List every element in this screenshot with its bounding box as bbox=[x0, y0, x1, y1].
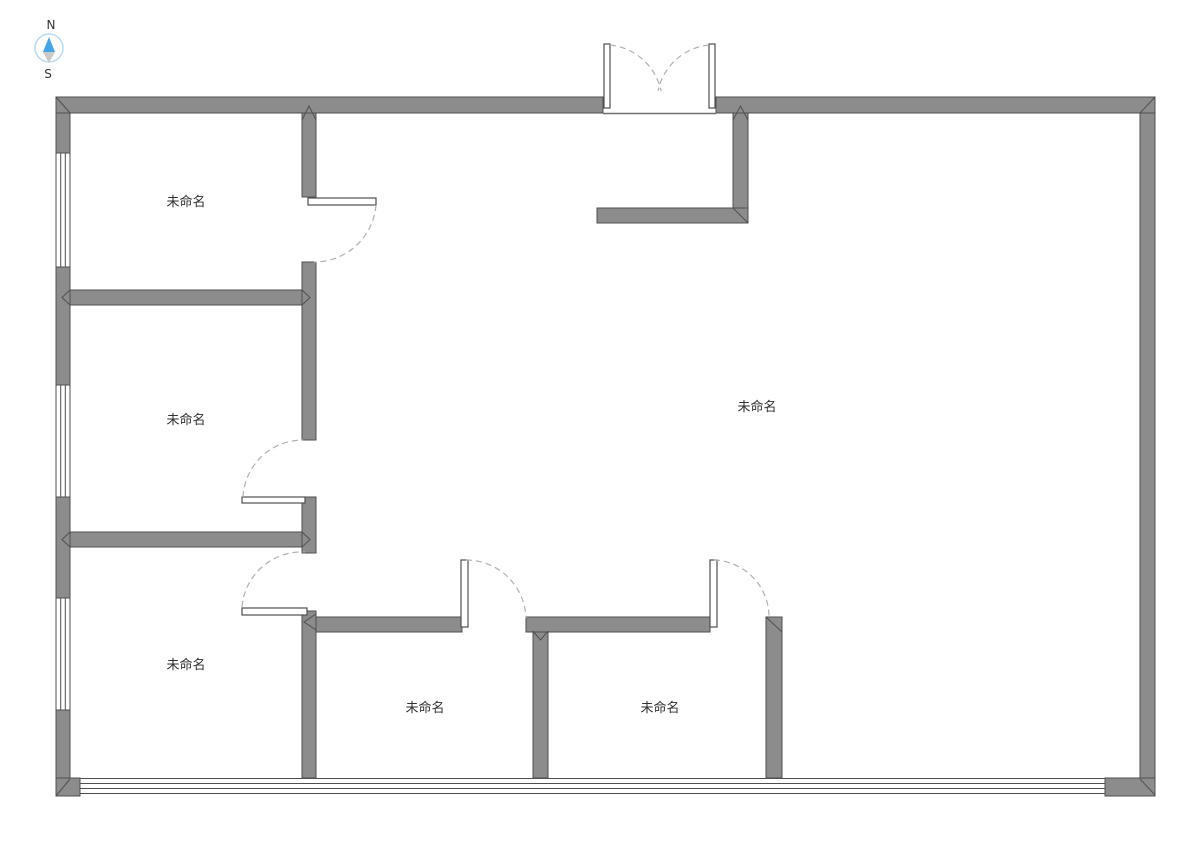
wall-bottom-rooms-top-a[interactable] bbox=[316, 617, 462, 632]
wall-top-left-segment[interactable] bbox=[56, 97, 603, 113]
wall-entry-vertical[interactable] bbox=[733, 113, 748, 223]
door-top-left-room[interactable] bbox=[308, 198, 376, 262]
room-label[interactable]: 未命名 bbox=[405, 700, 444, 716]
wall-mid-vertical-2[interactable] bbox=[302, 262, 316, 440]
double-entry-door[interactable] bbox=[603, 44, 716, 114]
compass-north-needle-icon bbox=[43, 37, 55, 52]
wall-room-divider-2[interactable] bbox=[70, 532, 302, 547]
entry-door-left-panel[interactable] bbox=[604, 44, 610, 108]
wall-top-right-segment[interactable] bbox=[716, 97, 1155, 113]
exterior-walls bbox=[56, 97, 1155, 796]
wall-joints bbox=[56, 97, 1155, 796]
compass-north-label: N bbox=[47, 18, 56, 32]
wall-mid-vertical-1[interactable] bbox=[302, 113, 316, 197]
doors bbox=[242, 44, 769, 627]
wall-mid-vertical-4[interactable] bbox=[302, 611, 316, 778]
wall-entry-horizontal[interactable] bbox=[597, 208, 748, 223]
window-left-1[interactable] bbox=[56, 153, 70, 267]
room-label[interactable]: 未命名 bbox=[737, 399, 776, 415]
floorplan-canvas[interactable]: N S bbox=[0, 0, 1190, 842]
wall-left-segment-4[interactable] bbox=[56, 710, 70, 778]
room-label[interactable]: 未命名 bbox=[166, 657, 205, 673]
window-bottom-band[interactable] bbox=[80, 779, 1105, 794]
wall-bottom-rooms-top-b[interactable] bbox=[526, 617, 710, 632]
wall-room-divider-1[interactable] bbox=[70, 290, 302, 305]
room-label[interactable]: 未命名 bbox=[640, 700, 679, 716]
compass: N S bbox=[35, 18, 63, 81]
door-bottom-left-room[interactable] bbox=[242, 552, 307, 615]
wall-bottom-right-room-right[interactable] bbox=[766, 617, 782, 778]
wall-left-segment-1[interactable] bbox=[56, 113, 70, 153]
windows bbox=[56, 153, 1105, 794]
wall-left-segment-2[interactable] bbox=[56, 267, 70, 385]
room-label[interactable]: 未命名 bbox=[166, 412, 205, 428]
entry-door-left-swing-arc bbox=[610, 45, 661, 91]
window-left-3[interactable] bbox=[56, 598, 70, 710]
wall-bottom-rooms-divider[interactable] bbox=[533, 632, 548, 778]
compass-south-label: S bbox=[44, 67, 52, 81]
room-label[interactable]: 未命名 bbox=[166, 194, 205, 210]
door-bottom-right-room[interactable] bbox=[710, 560, 769, 627]
entry-door-right-swing-arc bbox=[658, 45, 709, 91]
wall-right[interactable] bbox=[1140, 113, 1155, 778]
entry-door-right-panel[interactable] bbox=[709, 44, 715, 108]
room-labels: 未命名未命名未命名未命名未命名未命名 bbox=[166, 194, 776, 716]
interior-walls bbox=[70, 113, 782, 778]
window-left-2[interactable] bbox=[56, 385, 70, 497]
wall-left-segment-3[interactable] bbox=[56, 497, 70, 598]
floorplan-drawing: N S bbox=[0, 0, 1190, 842]
door-bottom-middle-room[interactable] bbox=[461, 560, 526, 627]
door-middle-left-room[interactable] bbox=[242, 440, 305, 503]
